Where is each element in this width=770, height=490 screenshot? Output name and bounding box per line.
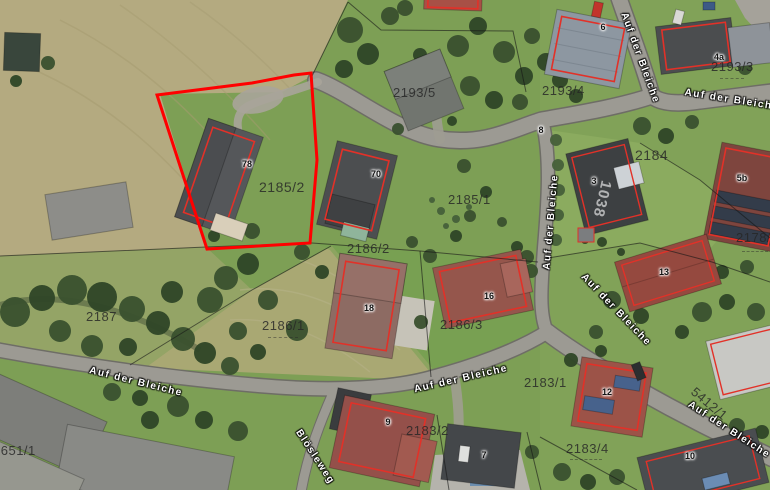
house-number-78: 78 [242,159,252,169]
house-number-5b: 5b [737,173,748,183]
area-tick-marks [268,337,298,338]
house-number-4a: 4a [714,52,724,62]
parcel-label-2185-2: 2185/2 [259,179,305,195]
parcel-label-2651-1: 2651/1 [0,443,36,458]
house-number-8: 8 [538,125,543,135]
parcel-label-2193-4: 2193/4 [542,83,585,98]
parcel-label-2185-1: 2185/1 [448,192,491,207]
house-number-6: 6 [600,22,605,32]
parcel-label-2178: 2178/ [736,230,770,245]
parcel-label-2186-3: 2186/3 [440,317,483,332]
parcel-label-2183-4: 2183/4 [566,441,609,456]
building-top-partial [424,0,483,11]
house-number-7: 7 [481,450,486,460]
building-topleft [3,32,40,71]
parcel-label-2193-5: 2193/5 [393,85,436,100]
house-number-10: 10 [685,451,695,461]
parcel-label-2187: 2187 [86,309,117,324]
car-blue [703,2,715,10]
house-number-70: 70 [371,169,381,179]
parcel-label-2183-1: 2183/1 [524,375,567,390]
area-tick-marks [742,251,768,252]
house-number-16: 16 [484,291,494,301]
building-shed-3 [578,228,594,242]
house-number-12: 12 [602,387,612,397]
house-number-9: 9 [385,417,390,427]
parcel-label-2186-2: 2186/2 [347,241,390,256]
area-tick-marks [570,459,602,460]
parcel-label-2183-2: 2183/2 [406,423,449,438]
building-house-6 [544,9,631,88]
map-canvas[interactable]: 2185/2 2185/1 2193/5 2193/4 2193/3 2184 … [0,0,770,490]
house-number-13: 13 [659,267,669,277]
parcel-label-2184: 2184 [635,147,668,163]
parcel-label-2186-1: 2186/1 [262,318,305,333]
area-tick-marks [720,78,744,79]
house-number-18: 18 [364,303,374,313]
